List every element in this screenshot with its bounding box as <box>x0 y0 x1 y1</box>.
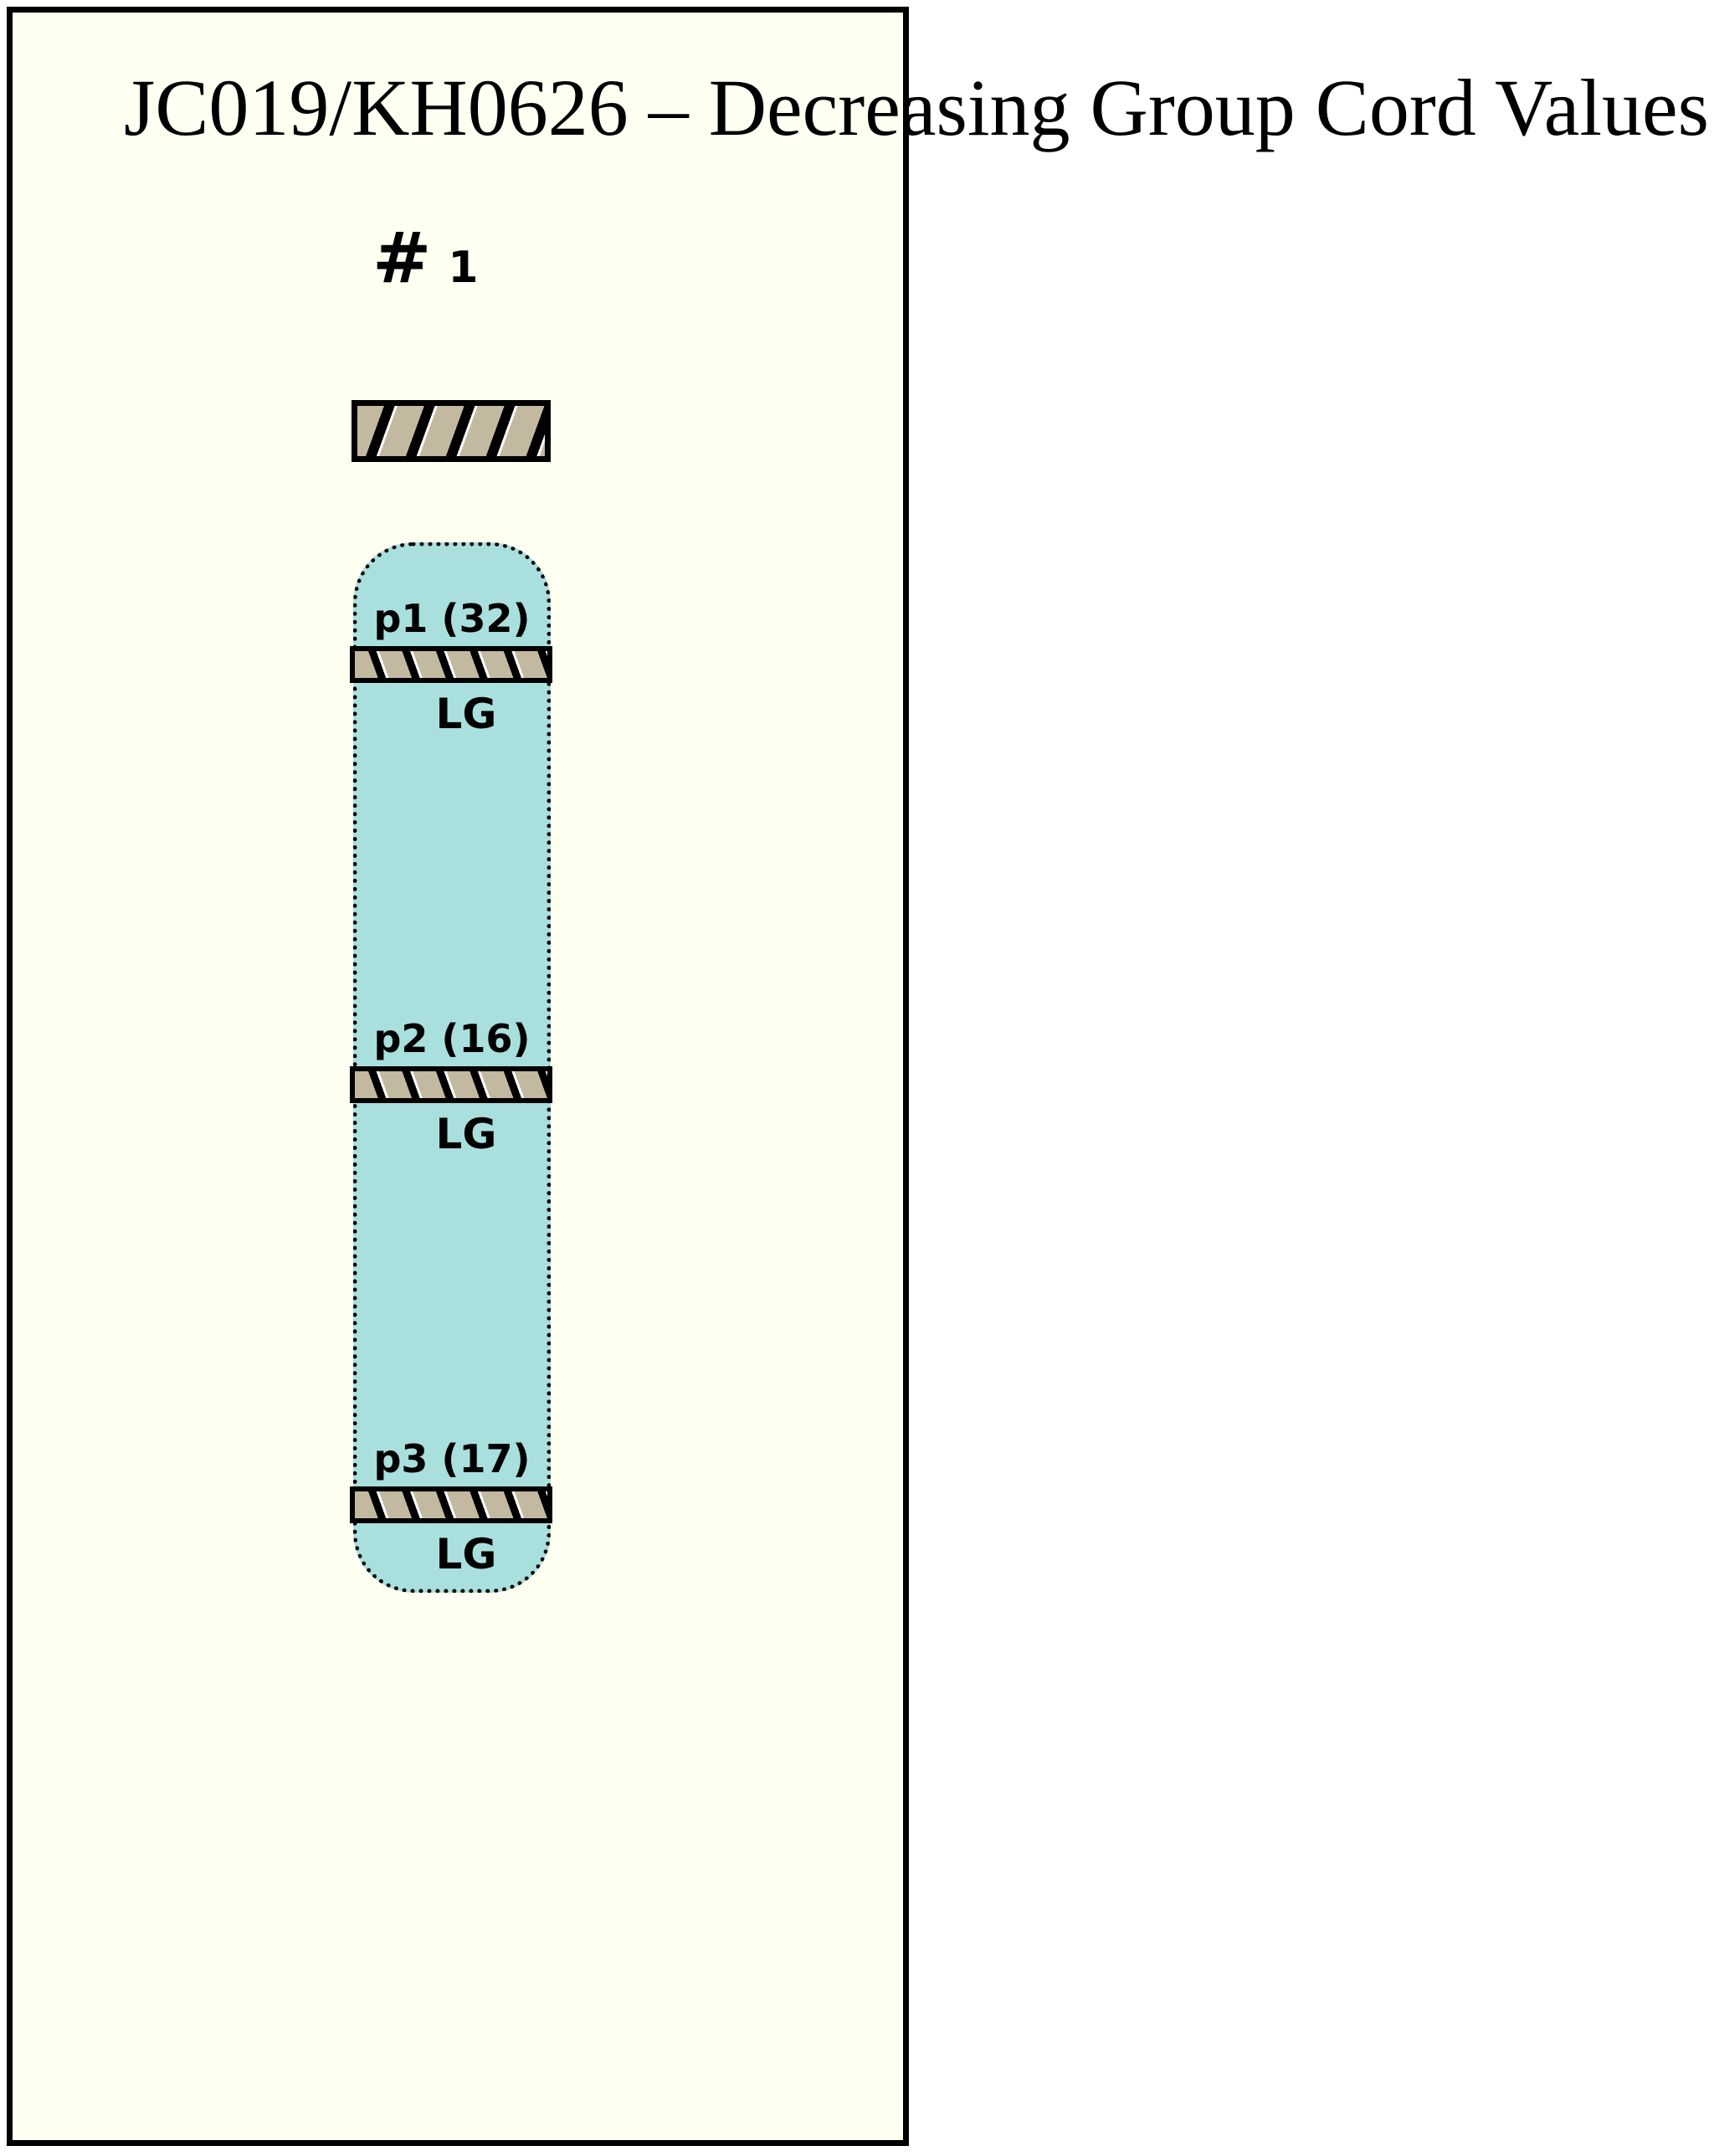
segment-position-label: p2 (16) <box>353 1019 551 1058</box>
figure: JC019/KH0626 – Decreasing Group Cord Val… <box>0 0 1714 2156</box>
chromosome-number: # 1 <box>372 223 479 293</box>
figure-title: JC019/KH0626 – Decreasing Group Cord Val… <box>124 64 1709 152</box>
segment-marker-band <box>350 646 552 683</box>
chromosome-number-value: 1 <box>448 246 478 290</box>
segment-marker-band <box>350 1486 552 1523</box>
linkage-group-label: LG <box>367 1113 565 1155</box>
segment-position-label: p1 (32) <box>353 599 551 638</box>
linkage-group-label: LG <box>367 1533 565 1575</box>
standalone-marker-bar <box>352 400 551 462</box>
segment-position-label: p3 (17) <box>353 1440 551 1478</box>
hash-symbol: # <box>372 223 431 293</box>
linkage-group-label: LG <box>367 693 565 735</box>
segment-marker-band <box>350 1066 552 1103</box>
